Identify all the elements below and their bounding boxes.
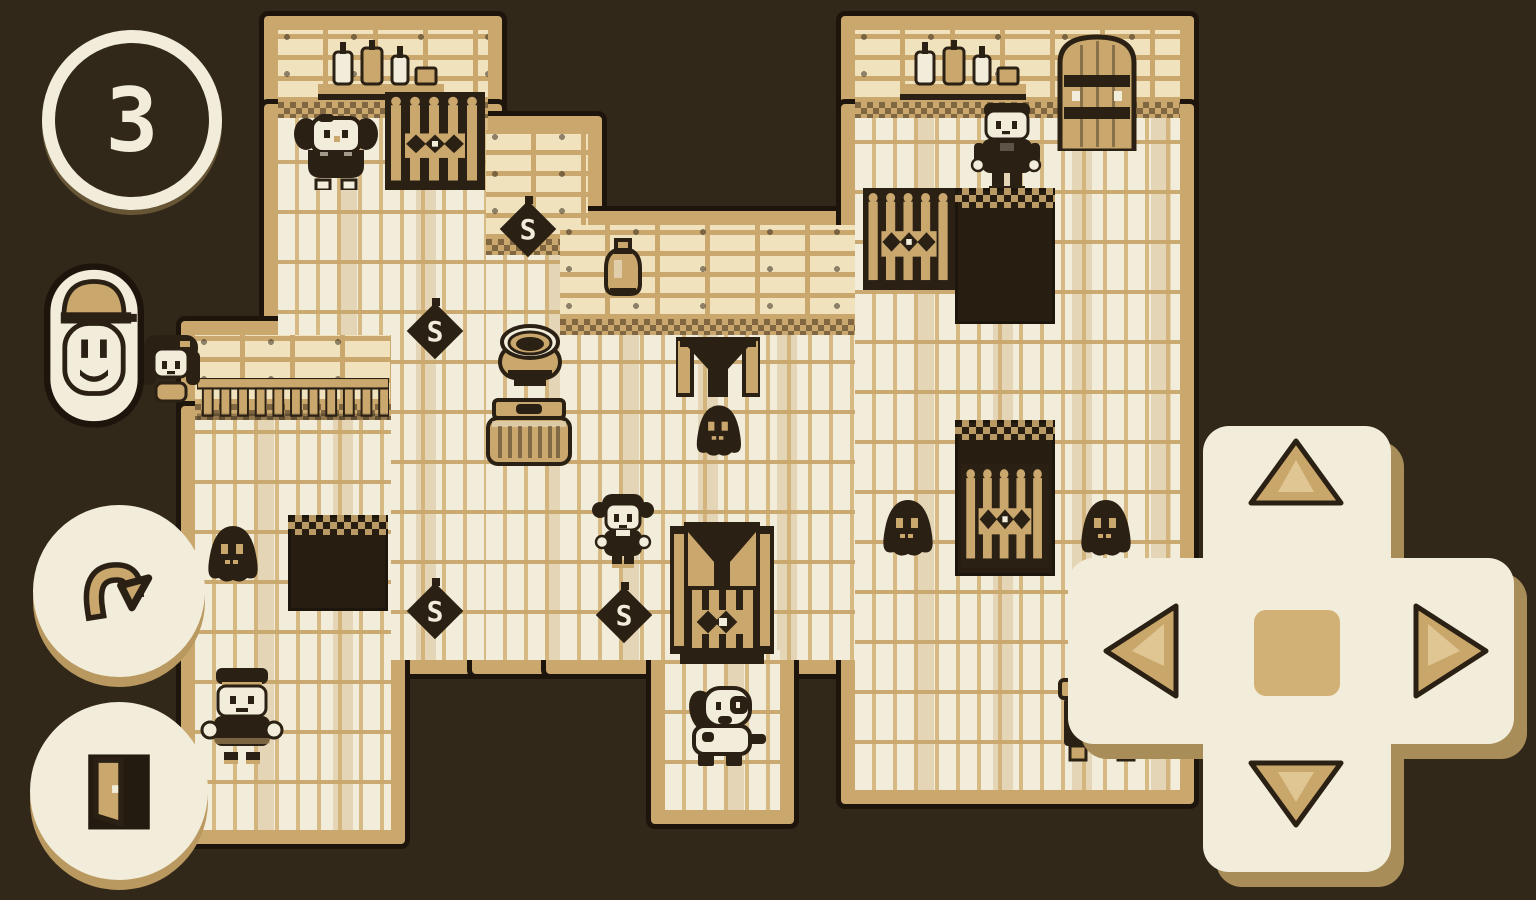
switch-tile: S xyxy=(404,298,466,362)
railing xyxy=(197,378,389,422)
cooking-pot-prop xyxy=(490,318,570,400)
girl-character xyxy=(588,492,658,572)
bottle-shelf xyxy=(898,38,1028,106)
active-character-portrait xyxy=(40,258,148,433)
ghost-enemy xyxy=(692,400,744,456)
switch-tile: S xyxy=(497,196,559,260)
capped-man-portrait-icon xyxy=(40,258,148,433)
floor-pit xyxy=(955,188,1055,324)
bellhop-character xyxy=(196,666,288,768)
undo-arrow-icon xyxy=(71,543,167,639)
exit-door-button[interactable] xyxy=(30,702,208,880)
switch-tile: S xyxy=(404,578,466,642)
basket-prop xyxy=(486,398,572,470)
move-counter: 3 xyxy=(42,30,222,210)
dpad xyxy=(1062,420,1532,896)
ghost-enemy xyxy=(878,494,936,556)
svg-text:S: S xyxy=(616,599,633,632)
dog-character xyxy=(678,678,770,786)
jar-prop xyxy=(600,236,646,296)
pit-with-gate xyxy=(955,420,1055,576)
counter-value: 3 xyxy=(106,69,159,172)
svg-text:S: S xyxy=(427,595,444,628)
guard-character xyxy=(966,103,1048,199)
switch-tile: S xyxy=(593,582,655,646)
open-door-icon xyxy=(69,741,169,841)
dpad-center-button[interactable] xyxy=(1254,610,1340,696)
gate-chute xyxy=(670,522,774,664)
svg-text:S: S xyxy=(520,213,537,246)
portcullis-gate xyxy=(385,92,485,190)
undo-button[interactable] xyxy=(33,505,205,677)
elder-character xyxy=(292,112,380,190)
svg-text:S: S xyxy=(427,315,444,348)
game-screen: SSSS 3 xyxy=(0,0,1536,900)
ghost-enemy xyxy=(203,520,261,582)
floor-pit xyxy=(288,515,388,611)
wooden-door xyxy=(1056,33,1138,151)
floor-section xyxy=(195,420,391,830)
portcullis-gate xyxy=(863,188,955,290)
